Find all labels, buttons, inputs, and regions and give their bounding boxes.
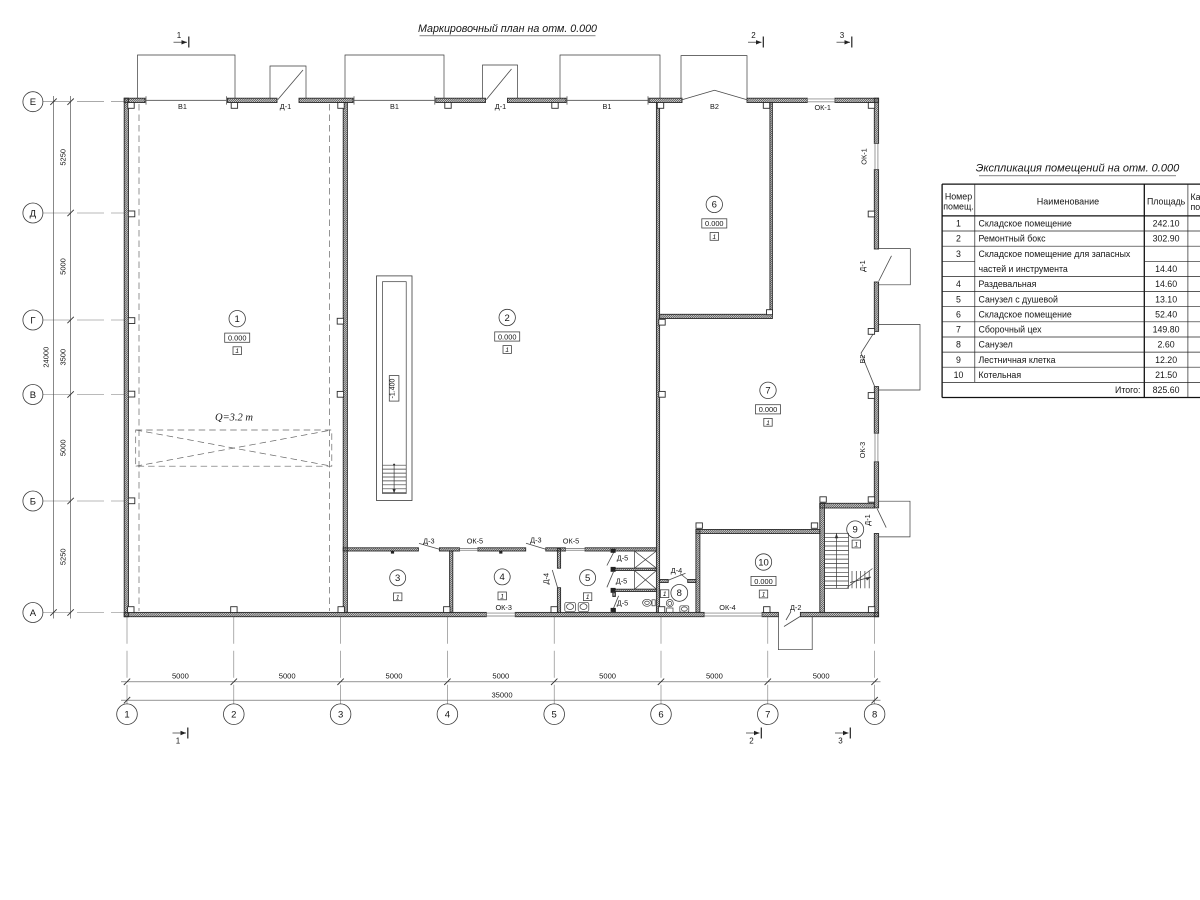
svg-text:Д-1: Д-1 (280, 102, 291, 111)
svg-text:3: 3 (840, 31, 845, 40)
svg-text:Сборочный цех: Сборочный цех (979, 325, 1043, 335)
svg-text:А: А (30, 608, 37, 619)
svg-text:7: 7 (765, 386, 770, 397)
svg-text:0.000: 0.000 (228, 334, 247, 343)
svg-text:В1: В1 (390, 102, 399, 111)
svg-text:14.60: 14.60 (1155, 279, 1177, 289)
svg-text:13.10: 13.10 (1155, 294, 1177, 304)
svg-text:6: 6 (712, 200, 717, 211)
svg-text:5250: 5250 (58, 149, 67, 166)
svg-text:7: 7 (956, 325, 961, 335)
svg-text:Д-5: Д-5 (617, 599, 628, 608)
svg-text:1: 1 (712, 234, 716, 241)
svg-text:5000: 5000 (706, 672, 723, 681)
svg-text:Номер: Номер (945, 192, 972, 202)
svg-text:ОК-4: ОК-4 (719, 603, 735, 612)
svg-text:5000: 5000 (492, 672, 509, 681)
svg-text:ОК-3: ОК-3 (858, 442, 867, 458)
svg-text:8: 8 (872, 710, 877, 721)
svg-text:Ка: Ка (1191, 192, 1200, 202)
svg-text:1: 1 (500, 593, 504, 600)
svg-text:5000: 5000 (279, 672, 296, 681)
svg-text:5000: 5000 (58, 439, 67, 456)
svg-text:2: 2 (505, 313, 510, 324)
svg-text:Складское помещение для запасн: Складское помещение для запасных (979, 249, 1131, 259)
svg-text:825.60: 825.60 (1153, 385, 1180, 395)
svg-text:5000: 5000 (58, 258, 67, 275)
svg-text:Д-3: Д-3 (530, 536, 541, 545)
svg-text:1: 1 (124, 710, 129, 721)
svg-text:0.000: 0.000 (498, 332, 517, 341)
svg-text:5: 5 (956, 294, 961, 304)
svg-text:по: по (1191, 202, 1200, 212)
svg-text:0.000: 0.000 (754, 577, 773, 586)
svg-text:5: 5 (552, 710, 557, 721)
svg-text:8: 8 (956, 340, 961, 350)
svg-text:1: 1 (766, 420, 770, 427)
svg-text:6: 6 (956, 309, 961, 319)
svg-text:Б: Б (30, 496, 36, 507)
svg-text:4: 4 (956, 279, 961, 289)
svg-text:Д-1: Д-1 (495, 102, 506, 111)
svg-text:ОК-5: ОК-5 (563, 537, 579, 546)
svg-text:5000: 5000 (172, 672, 189, 681)
svg-text:Д-5: Д-5 (617, 554, 628, 563)
svg-text:0.000: 0.000 (759, 405, 778, 414)
svg-text:ОК-3: ОК-3 (495, 603, 511, 612)
svg-text:5000: 5000 (813, 672, 830, 681)
svg-text:В2: В2 (710, 102, 719, 111)
svg-text:1: 1 (956, 219, 961, 229)
svg-text:В1: В1 (603, 102, 612, 111)
svg-text:14.40: 14.40 (1155, 264, 1177, 274)
svg-text:Складское помещение: Складское помещение (979, 219, 1072, 229)
svg-text:2: 2 (749, 737, 754, 746)
svg-text:Е: Е (30, 97, 36, 108)
svg-text:1: 1 (235, 314, 240, 325)
svg-text:242.10: 242.10 (1153, 219, 1180, 229)
svg-text:1: 1 (854, 542, 858, 549)
svg-text:1: 1 (176, 737, 181, 746)
svg-text:1: 1 (663, 591, 667, 598)
svg-text:6: 6 (658, 710, 663, 721)
svg-text:Д-3: Д-3 (423, 537, 434, 546)
svg-text:5: 5 (585, 573, 590, 584)
svg-text:21.50: 21.50 (1155, 370, 1177, 380)
svg-text:Д-2: Д-2 (790, 603, 801, 612)
svg-text:4: 4 (445, 710, 450, 721)
svg-text:1: 1 (235, 348, 239, 355)
svg-text:3500: 3500 (58, 349, 67, 366)
svg-text:3: 3 (395, 573, 400, 584)
svg-text:2: 2 (956, 234, 961, 244)
svg-text:Маркировочный план на отм. 0.0: Маркировочный план на отм. 0.000 (418, 23, 597, 35)
svg-text:3: 3 (838, 737, 843, 746)
svg-text:1: 1 (177, 31, 182, 40)
svg-text:Площадь: Площадь (1147, 197, 1186, 207)
svg-text:Складское помещение: Складское помещение (979, 309, 1072, 319)
svg-text:7: 7 (765, 710, 770, 721)
svg-text:2.60: 2.60 (1158, 340, 1175, 350)
svg-text:2: 2 (231, 710, 236, 721)
svg-text:Q=3.2 т: Q=3.2 т (215, 413, 253, 424)
svg-text:3: 3 (338, 710, 343, 721)
svg-text:В2: В2 (858, 355, 867, 364)
svg-text:1: 1 (505, 347, 509, 354)
svg-text:5000: 5000 (386, 672, 403, 681)
svg-text:9: 9 (956, 355, 961, 365)
svg-text:12.20: 12.20 (1155, 355, 1177, 365)
svg-text:302.90: 302.90 (1153, 234, 1180, 244)
svg-text:Д-4: Д-4 (671, 566, 682, 575)
svg-text:5000: 5000 (599, 672, 616, 681)
svg-text:35000: 35000 (491, 690, 512, 699)
svg-text:1: 1 (586, 594, 590, 601)
svg-text:2: 2 (751, 31, 756, 40)
svg-text:Наименование: Наименование (1037, 197, 1099, 207)
svg-text:4: 4 (500, 572, 505, 583)
svg-text:5250: 5250 (58, 548, 67, 565)
svg-text:9: 9 (853, 525, 858, 536)
svg-text:8: 8 (677, 588, 682, 599)
svg-text:В1: В1 (178, 102, 187, 111)
svg-text:3: 3 (956, 249, 961, 259)
svg-text:Д-5: Д-5 (616, 577, 627, 586)
svg-text:Ремонтный бокс: Ремонтный бокс (979, 234, 1047, 244)
svg-text:52.40: 52.40 (1155, 309, 1177, 319)
svg-text:149.80: 149.80 (1153, 325, 1180, 335)
svg-text:частей и инструмента: частей и инструмента (979, 264, 1068, 274)
svg-text:Итого:: Итого: (1115, 385, 1141, 395)
svg-text:24000: 24000 (42, 347, 51, 368)
svg-text:ОК-5: ОК-5 (467, 537, 483, 546)
svg-text:1: 1 (396, 594, 400, 601)
svg-text:Санузел с душевой: Санузел с душевой (979, 294, 1059, 304)
svg-text:ОК-1: ОК-1 (860, 148, 869, 164)
svg-text:Г: Г (30, 315, 35, 326)
svg-text:Котельная: Котельная (979, 370, 1022, 380)
svg-text:Д-1: Д-1 (863, 514, 872, 525)
svg-text:Д: Д (30, 208, 37, 219)
svg-text:Д-1: Д-1 (858, 260, 867, 271)
svg-text:Раздевальная: Раздевальная (979, 279, 1037, 289)
svg-text:В: В (30, 390, 36, 401)
svg-text:Экспликация помещений на отм.: Экспликация помещений на отм. 0.000 (976, 163, 1180, 175)
svg-text:10: 10 (758, 557, 769, 568)
svg-text:Лестничная клетка: Лестничная клетка (979, 355, 1056, 365)
svg-text:Д-4: Д-4 (542, 573, 551, 584)
svg-text:0.000: 0.000 (705, 219, 724, 228)
svg-text:Санузел: Санузел (979, 340, 1013, 350)
svg-text:ОК-1: ОК-1 (814, 103, 830, 112)
svg-text:1: 1 (762, 592, 766, 599)
svg-text:10: 10 (954, 370, 964, 380)
svg-text:-1.400: -1.400 (389, 378, 396, 398)
svg-text:помещ.: помещ. (943, 202, 974, 212)
